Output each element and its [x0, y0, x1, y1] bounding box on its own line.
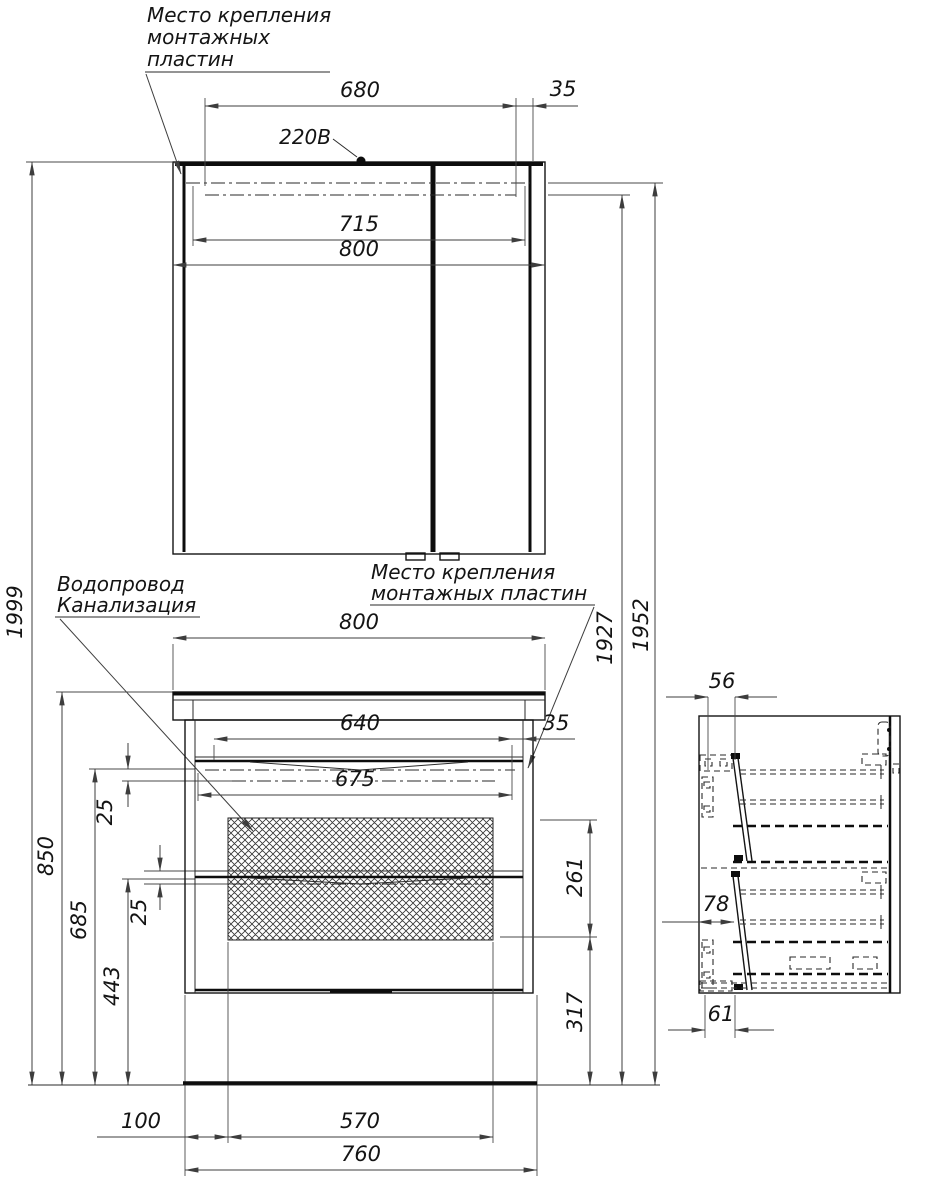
- dim-vanity-35: 35: [543, 711, 570, 735]
- dim-plate-gap-25b: 25: [127, 899, 151, 926]
- dim-side-56: 56: [709, 669, 736, 693]
- mounting-plates-top-line1: Место крепления: [147, 3, 331, 27]
- mirror-top-dimensions: 680 35 715 800: [173, 77, 578, 265]
- technical-drawing: 680 35 715 800 220В Место крепления монт…: [0, 0, 931, 1200]
- left-height-dimensions: 1999 850 685 443 25 25: [3, 162, 232, 1085]
- dim-vanity-675: 675: [335, 767, 375, 791]
- mounting-plates-mid-line2: монтажных пластин: [371, 581, 587, 605]
- dim-vanity-640: 640: [340, 711, 380, 735]
- dim-height-443: 443: [100, 966, 124, 1006]
- dim-mirror-715: 715: [339, 212, 379, 236]
- dim-height-1952: 1952: [629, 598, 653, 651]
- mounting-plates-label-mid: Место крепления монтажных пластин: [370, 560, 595, 768]
- vanity-side-view: [699, 716, 900, 993]
- mounting-plates-top-line2: монтажных: [147, 25, 270, 49]
- side-view-dimensions: 56 78 61: [662, 669, 777, 1038]
- power-point-dot: [357, 157, 366, 166]
- vanity-front-view: 800: [173, 610, 545, 993]
- dim-side-61: 61: [708, 1002, 735, 1026]
- dim-vanity-570: 570: [340, 1109, 380, 1133]
- plumbing-label: Водопровод Канализация: [55, 572, 253, 831]
- dim-height-850: 850: [34, 836, 58, 876]
- dim-side-78: 78: [703, 892, 730, 916]
- floor-line: [28, 1083, 660, 1085]
- voltage-label: 220В: [279, 125, 331, 149]
- dim-mirror-800: 800: [339, 237, 379, 261]
- voltage-callout: 220В: [279, 125, 365, 166]
- drawing-sheet: 680 35 715 800 220В Место крепления монт…: [0, 0, 931, 1200]
- right-height-dimensions: 1952 1927: [548, 183, 663, 1085]
- dim-height-685: 685: [67, 900, 91, 940]
- dim-vanity-261: 261: [563, 857, 587, 897]
- dim-height-1999: 1999: [3, 585, 27, 638]
- dim-mirror-35: 35: [550, 77, 577, 101]
- dim-plate-gap-25a: 25: [93, 799, 117, 826]
- dim-mirror-680: 680: [340, 78, 380, 102]
- dim-height-1927: 1927: [593, 611, 617, 665]
- dim-vanity-760: 760: [341, 1142, 381, 1166]
- dim-vanity-800: 800: [339, 610, 379, 634]
- mounting-plates-top-line3: пластин: [147, 47, 234, 71]
- dim-vanity-317: 317: [563, 991, 587, 1032]
- dim-vanity-100: 100: [121, 1109, 161, 1133]
- plumbing-line2: Канализация: [57, 593, 196, 617]
